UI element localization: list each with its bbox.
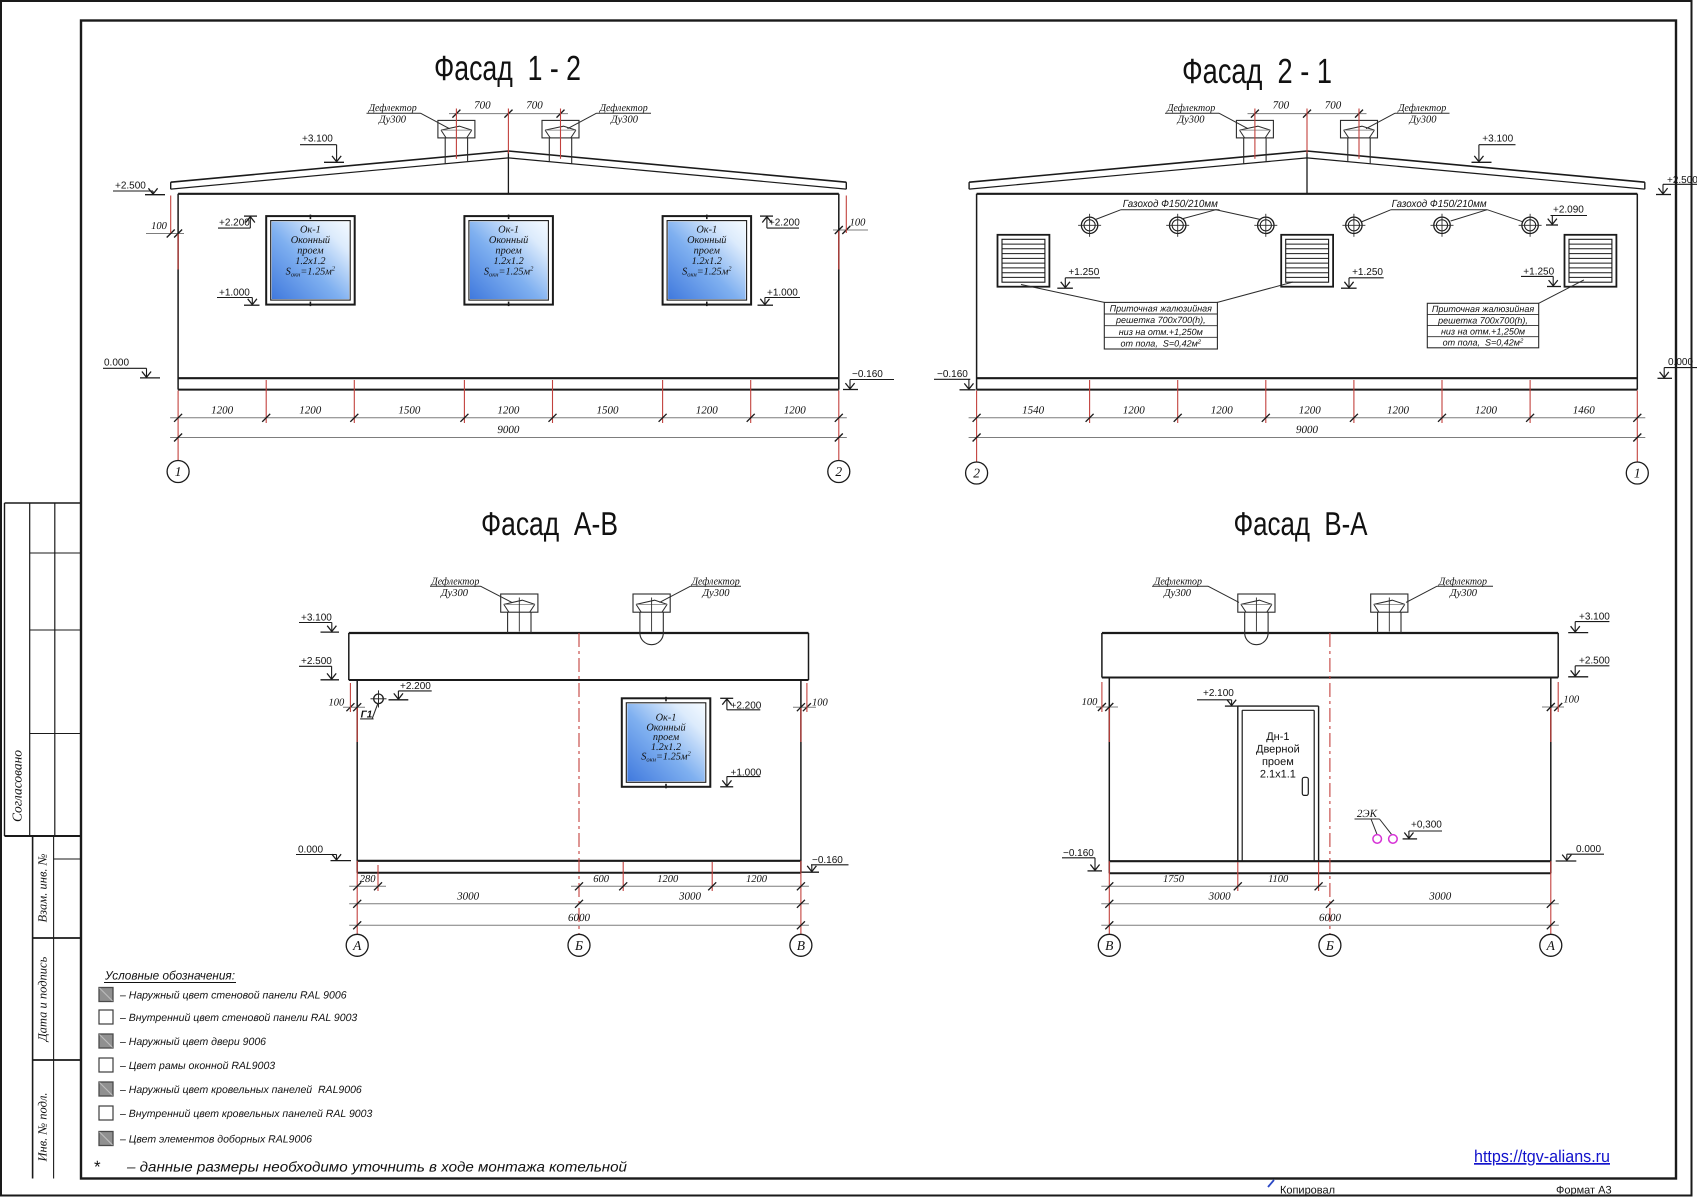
svg-text:Ду300: Ду300	[702, 588, 731, 599]
svg-text:100: 100	[812, 697, 829, 708]
svg-text:Г1: Г1	[361, 709, 373, 720]
svg-text:– Внутренний цвет кровельных п: – Внутренний цвет кровельных панелей RAL…	[119, 1108, 372, 1120]
svg-text:Приточная жалюзийная: Приточная жалюзийная	[1110, 304, 1213, 314]
svg-text:1750: 1750	[1163, 874, 1185, 885]
svg-text:А: А	[352, 938, 362, 953]
svg-text:+2.200: +2.200	[219, 218, 250, 229]
svg-text:Фасад 1 - 2: Фасад 1 - 2	[434, 49, 581, 88]
svg-text:1: 1	[1634, 466, 1641, 481]
svg-text:1.2х1.2: 1.2х1.2	[295, 256, 325, 267]
svg-text:– Цвет элементов доборных RAL9: – Цвет элементов доборных RAL9006	[119, 1134, 312, 1146]
svg-text:9000: 9000	[1296, 424, 1319, 436]
svg-text:– Наружный цвет стеновой панел: – Наружный цвет стеновой панели RAL 9006	[119, 990, 347, 1002]
svg-text:Ок-1: Ок-1	[300, 224, 321, 235]
svg-text:В: В	[1105, 938, 1113, 953]
svg-text:0.000: 0.000	[104, 358, 129, 369]
svg-text:2.1х1.1: 2.1х1.1	[1260, 769, 1296, 781]
svg-text:700: 700	[526, 100, 543, 112]
svg-text:700: 700	[1273, 100, 1290, 112]
svg-text:Дефлектор: Дефлектор	[1166, 103, 1215, 114]
svg-text:+2.090: +2.090	[1553, 205, 1584, 216]
svg-text:+2.200: +2.200	[769, 218, 800, 229]
svg-text:+1.250: +1.250	[1352, 267, 1383, 278]
svg-text:Фасад 2 - 1: Фасад 2 - 1	[1182, 52, 1332, 91]
svg-text:– данные размеры необходимо ут: – данные размеры необходимо уточнить в х…	[126, 1159, 627, 1175]
svg-text:−0.160: −0.160	[937, 369, 968, 380]
svg-text:от пола, S=0,42м2: от пола, S=0,42м2	[1443, 338, 1524, 348]
svg-text:Дн-1: Дн-1	[1266, 731, 1289, 743]
svg-text:Оконный: Оконный	[291, 235, 331, 246]
svg-text:Оконный: Оконный	[687, 235, 727, 246]
svg-text:*: *	[94, 1158, 101, 1177]
svg-text:А: А	[1546, 938, 1556, 953]
svg-text:Ду300: Ду300	[440, 588, 469, 599]
svg-text:280: 280	[360, 874, 377, 885]
svg-text:Ду300: Ду300	[1449, 588, 1478, 599]
svg-text:Б: Б	[574, 938, 583, 953]
svg-text:1200: 1200	[299, 405, 322, 417]
svg-text:+3.100: +3.100	[1579, 611, 1610, 622]
svg-text:+2.100: +2.100	[1203, 688, 1234, 699]
svg-text:100: 100	[151, 221, 168, 232]
svg-text:Дефлектор: Дефлектор	[1397, 103, 1446, 114]
svg-text:Оконный: Оконный	[489, 235, 529, 246]
svg-text:1200: 1200	[657, 874, 679, 885]
svg-text:Ок-1: Ок-1	[696, 224, 717, 235]
svg-text:Дата и подпись: Дата и подпись	[36, 956, 50, 1042]
svg-text:низ на отм.+1,250м: низ на отм.+1,250м	[1119, 327, 1203, 337]
svg-text:600: 600	[593, 874, 610, 885]
svg-text:3000: 3000	[1208, 891, 1232, 903]
svg-text:Приточная жалюзийная: Приточная жалюзийная	[1432, 304, 1535, 314]
svg-text:Условные обозначения:: Условные обозначения:	[104, 969, 235, 983]
svg-text:Ок-1: Ок-1	[498, 224, 519, 235]
svg-text:1200: 1200	[784, 405, 807, 417]
svg-text:проем: проем	[1262, 756, 1294, 768]
svg-text:1200: 1200	[497, 405, 520, 417]
svg-text:1200: 1200	[1299, 405, 1322, 417]
svg-text:100: 100	[329, 697, 346, 708]
svg-text:1100: 1100	[1268, 874, 1289, 885]
svg-text:1460: 1460	[1573, 405, 1596, 417]
svg-text:от пола, S=0,42м2: от пола, S=0,42м2	[1120, 339, 1201, 349]
svg-text:проем: проем	[694, 246, 721, 257]
svg-text:Ду300: Ду300	[1163, 588, 1192, 599]
svg-text:+1.000: +1.000	[767, 288, 798, 299]
svg-text:Формат А3: Формат А3	[1556, 1185, 1612, 1197]
svg-text:+3.100: +3.100	[301, 612, 332, 623]
svg-text:+2.500: +2.500	[1579, 656, 1610, 667]
svg-text:Ду300: Ду300	[1177, 114, 1206, 125]
svg-text:1.2х1.2: 1.2х1.2	[692, 256, 722, 267]
svg-text:Согласовано: Согласовано	[10, 750, 25, 822]
svg-text:3000: 3000	[456, 891, 480, 903]
svg-text:0.000: 0.000	[1576, 844, 1601, 855]
svg-text:2ЭК: 2ЭК	[1357, 808, 1378, 820]
svg-text:700: 700	[1325, 100, 1342, 112]
svg-text:проем: проем	[495, 246, 522, 257]
svg-text:1200: 1200	[1123, 405, 1146, 417]
svg-text:1200: 1200	[1475, 405, 1498, 417]
svg-text:6000: 6000	[1319, 912, 1342, 924]
svg-text:Фасад А-В: Фасад А-В	[481, 505, 618, 542]
svg-text:1540: 1540	[1022, 405, 1045, 417]
svg-text:+0,300: +0,300	[1411, 819, 1442, 830]
svg-text:https://tgv-alians.ru: https://tgv-alians.ru	[1474, 1147, 1610, 1166]
svg-text:Газоход Ф150/210мм: Газоход Ф150/210мм	[1392, 199, 1487, 210]
svg-text:1200: 1200	[746, 874, 768, 885]
svg-text:100: 100	[850, 218, 867, 229]
svg-text:2: 2	[835, 464, 842, 479]
svg-text:– Внутренний цвет стеновой пан: – Внутренний цвет стеновой панели RAL 90…	[119, 1012, 357, 1024]
svg-text:Дефлектор: Дефлектор	[368, 103, 417, 114]
svg-text:−0.160: −0.160	[812, 855, 843, 866]
svg-text:проем: проем	[297, 246, 324, 257]
svg-text:1500: 1500	[398, 405, 421, 417]
svg-text:1: 1	[175, 464, 182, 479]
svg-text:решетка 700х700(h),: решетка 700х700(h),	[1115, 315, 1206, 325]
svg-text:100: 100	[1563, 695, 1580, 706]
svg-text:+1.250: +1.250	[1068, 267, 1099, 278]
svg-text:1.2х1.2: 1.2х1.2	[493, 256, 523, 267]
svg-text:+1.250: +1.250	[1523, 266, 1554, 277]
svg-text:– Наружный цвет двери 9006: – Наружный цвет двери 9006	[119, 1036, 266, 1048]
svg-text:3000: 3000	[1428, 891, 1452, 903]
svg-text:Ду300: Ду300	[1409, 114, 1438, 125]
svg-text:1200: 1200	[1387, 405, 1410, 417]
svg-text:Инв. № подл.: Инв. № подл.	[36, 1092, 50, 1162]
svg-text:+2.500: +2.500	[301, 656, 332, 667]
svg-text:– Наружный цвет кровельных пан: – Наружный цвет кровельных панелей RAL90…	[119, 1084, 362, 1096]
svg-text:+3.100: +3.100	[302, 134, 333, 145]
svg-text:решетка 700х700(h),: решетка 700х700(h),	[1437, 315, 1528, 325]
svg-text:низ на отм.+1,250м: низ на отм.+1,250м	[1441, 327, 1525, 337]
svg-text:1200: 1200	[211, 405, 234, 417]
svg-text:−0.160: −0.160	[852, 369, 883, 380]
svg-text:+2.500: +2.500	[115, 181, 146, 192]
svg-text:Б: Б	[1325, 938, 1334, 953]
svg-text:+3.100: +3.100	[1482, 134, 1513, 145]
svg-text:1200: 1200	[696, 405, 719, 417]
svg-text:0.000: 0.000	[298, 845, 323, 856]
svg-text:100: 100	[1082, 697, 1099, 708]
svg-text:Ду300: Ду300	[610, 114, 639, 125]
svg-text:Дверной: Дверной	[1256, 744, 1300, 756]
svg-text:700: 700	[474, 100, 491, 112]
svg-text:6000: 6000	[568, 912, 591, 924]
svg-text:1200: 1200	[1211, 405, 1234, 417]
svg-text:В: В	[797, 938, 805, 953]
svg-text:Газоход Ф150/210мм: Газоход Ф150/210мм	[1123, 199, 1218, 210]
svg-text:+1.000: +1.000	[219, 288, 250, 299]
svg-text:Фасад В-А: Фасад В-А	[1234, 505, 1368, 542]
svg-text:3000: 3000	[678, 891, 702, 903]
svg-text:1500: 1500	[597, 405, 620, 417]
svg-text:2: 2	[973, 466, 980, 481]
svg-text:Копировал: Копировал	[1280, 1185, 1335, 1197]
svg-text:Ду300: Ду300	[378, 114, 407, 125]
svg-text:Взам. инв. №: Взам. инв. №	[36, 853, 50, 922]
svg-text:– Цвет рамы оконной RAL9003: – Цвет рамы оконной RAL9003	[119, 1060, 275, 1072]
svg-text:9000: 9000	[497, 424, 520, 436]
svg-text:+2.200: +2.200	[400, 681, 431, 692]
svg-text:Дефлектор: Дефлектор	[599, 103, 648, 114]
svg-text:0.000: 0.000	[1668, 357, 1693, 368]
